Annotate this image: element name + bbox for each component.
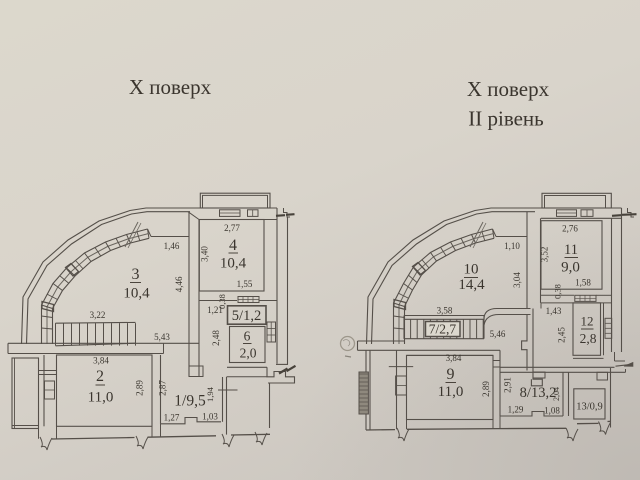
svg-text:3,58: 3,58 — [437, 306, 453, 316]
svg-text:1,46: 1,46 — [164, 241, 180, 251]
svg-text:3,84: 3,84 — [93, 356, 109, 366]
svg-text:12: 12 — [581, 314, 594, 329]
svg-text:10: 10 — [464, 262, 479, 278]
svg-text:8/13,2: 8/13,2 — [520, 385, 557, 401]
svg-text:5,43: 5,43 — [154, 332, 170, 342]
svg-text:1,58: 1,58 — [575, 278, 591, 288]
svg-text:9,0: 9,0 — [561, 260, 580, 276]
svg-text:2,89: 2,89 — [135, 380, 145, 396]
svg-text:13/0,9: 13/0,9 — [576, 402, 603, 413]
svg-text:3: 3 — [132, 266, 140, 283]
svg-text:Х поверх: Х поверх — [467, 77, 550, 101]
svg-text:2,76: 2,76 — [562, 224, 578, 234]
svg-text:9: 9 — [447, 366, 455, 383]
svg-text:1,27: 1,27 — [164, 413, 180, 423]
svg-text:1,10: 1,10 — [504, 241, 520, 251]
svg-text:2,04: 2,04 — [552, 387, 561, 401]
svg-text:2,77: 2,77 — [224, 223, 240, 233]
svg-text:3,52: 3,52 — [540, 247, 550, 263]
svg-text:2,91: 2,91 — [503, 377, 513, 393]
svg-text:2: 2 — [96, 368, 104, 385]
svg-text:4: 4 — [229, 237, 237, 254]
svg-text:1,08: 1,08 — [544, 406, 560, 416]
svg-text:7/2,7: 7/2,7 — [429, 322, 457, 337]
svg-text:10,4: 10,4 — [123, 286, 150, 302]
svg-text:3,40: 3,40 — [200, 246, 210, 262]
svg-text:2,48: 2,48 — [211, 330, 221, 346]
svg-text:5/1,2: 5/1,2 — [232, 308, 261, 324]
svg-text:2,89: 2,89 — [481, 381, 491, 397]
svg-text:6: 6 — [244, 329, 251, 344]
svg-text:4,46: 4,46 — [174, 276, 184, 292]
svg-text:1,55: 1,55 — [237, 279, 253, 289]
svg-text:5,46: 5,46 — [490, 329, 506, 339]
svg-text:11: 11 — [564, 242, 578, 258]
svg-text:3,84: 3,84 — [446, 353, 462, 363]
svg-text:10,4: 10,4 — [220, 256, 247, 272]
svg-text:2,45: 2,45 — [557, 327, 567, 343]
svg-text:1,94: 1,94 — [205, 386, 215, 402]
svg-text:11,0: 11,0 — [88, 390, 114, 406]
svg-text:0,38: 0,38 — [553, 284, 563, 299]
svg-text:1/9,5: 1/9,5 — [174, 393, 206, 410]
svg-text:1,43: 1,43 — [546, 306, 562, 316]
svg-text:1,29: 1,29 — [508, 405, 524, 415]
svg-text:3,04: 3,04 — [512, 272, 522, 288]
svg-text:ІІ рівень: ІІ рівень — [468, 107, 544, 131]
svg-text:11,0: 11,0 — [438, 384, 464, 400]
svg-text:14,4: 14,4 — [458, 277, 485, 293]
svg-text:2,8: 2,8 — [580, 331, 597, 346]
svg-text:Х поверх: Х поверх — [129, 75, 212, 99]
svg-text:1,21: 1,21 — [207, 305, 223, 315]
svg-text:2,0: 2,0 — [240, 346, 257, 361]
svg-text:3,22: 3,22 — [90, 310, 106, 320]
svg-text:1,03: 1,03 — [202, 412, 218, 422]
svg-text:2,87: 2,87 — [158, 380, 168, 396]
